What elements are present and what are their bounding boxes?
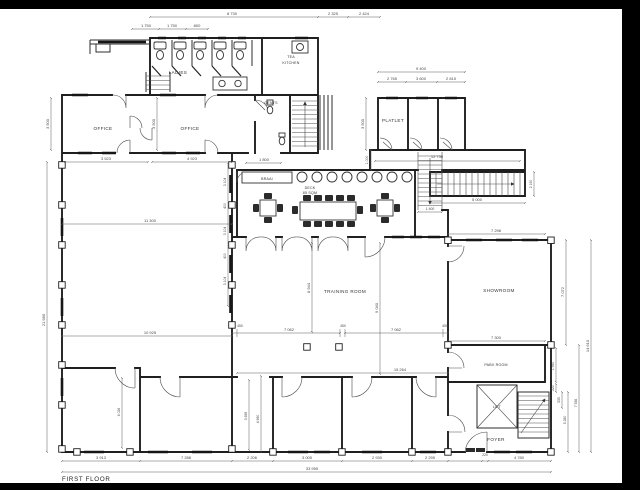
- dim-bottom-7: 220: [482, 453, 488, 457]
- letterbox-bars: [0, 0, 640, 490]
- dim-top-a: 2 325: [328, 11, 339, 16]
- dim-top-b: 2 424: [359, 11, 370, 16]
- dim-left-total: 21 980: [41, 313, 46, 326]
- dim-top-total: 8 730: [227, 11, 238, 16]
- dim-pabx-h: 1 550: [551, 362, 555, 371]
- dim-gents-w: 1 800: [259, 157, 270, 162]
- dim-platlet-h: 3 500: [360, 118, 365, 129]
- dim-col-c: 450: [442, 324, 448, 328]
- dim-stair-e-h: 2 150: [529, 180, 533, 189]
- dim-training-w1: 7 062: [284, 327, 295, 332]
- dim-platlet-1: 2 765: [387, 76, 398, 81]
- dim-showroom-h: 7 072: [560, 286, 565, 297]
- dim-platlet-total: 9 400: [416, 66, 427, 71]
- dim-grid-3: 3 104: [223, 227, 227, 236]
- room-label-deck: DECK: [305, 186, 316, 190]
- dim-grid-4: 400: [223, 253, 227, 259]
- floor-plan-drawing: OFFICE OFFICE LADIES TEA KITCHEN GENTS P…: [0, 0, 640, 490]
- dim-stair-e-w: 5 000: [472, 197, 483, 202]
- room-label-ladies: LADIES: [169, 70, 187, 75]
- room-label-platlet: PLATLET: [382, 118, 404, 123]
- room-label-deck-area: 85 SQM: [303, 191, 317, 195]
- dim-platlet-3: 2 815: [446, 76, 457, 81]
- square-table-right: [370, 193, 400, 223]
- dim-span-lower: 10 925: [144, 330, 157, 335]
- dim-bottom-4: 3 005: [302, 455, 313, 460]
- dim-bottom-6: 2 295: [425, 455, 436, 460]
- room-label-lift: LIFT: [493, 405, 502, 409]
- stair-foyer-treads: [518, 396, 549, 432]
- dim-stall-2: 1 750: [167, 23, 178, 28]
- dim-lift-s: 535: [557, 397, 561, 403]
- dim-bottom-3: 2 206: [247, 455, 258, 460]
- dim-bottom-1: 3 913: [96, 455, 107, 460]
- sanitary-fixtures: [154, 41, 308, 145]
- dim-right-total: 14 610: [585, 339, 590, 352]
- dim-bottom-8: 4 780: [514, 455, 525, 460]
- room-label-tea-kitchen-1: TEA: [287, 55, 295, 59]
- dim-bottom-total: 33 955: [306, 466, 319, 471]
- dim-training-h1: 8 944: [306, 282, 311, 293]
- dim-showroom-w1: 7 298: [491, 228, 502, 233]
- dim-span-upper: 11 300: [144, 218, 157, 223]
- dim-room-left-h: 6 026: [117, 408, 121, 417]
- dim-training-w2: 7 062: [391, 327, 402, 332]
- room-label-office-left: OFFICE: [94, 126, 113, 131]
- stair-foyer-arrow: [521, 399, 545, 433]
- sink-counter: [213, 77, 247, 90]
- dim-col-b: 450: [340, 324, 346, 328]
- dim-stall-1: 1 750: [141, 23, 152, 28]
- dim-grid-1: 3 104: [223, 178, 227, 187]
- dimension-lines: [47, 17, 591, 472]
- dim-office1-h: 3 500: [45, 118, 50, 129]
- square-table-left: [253, 193, 283, 223]
- room-label-gents: GENTS: [264, 101, 278, 105]
- right-bar: [622, 0, 640, 490]
- dim-stair-m-w: 1 400: [426, 207, 435, 211]
- dim-corridor-w: 1 000: [365, 156, 369, 165]
- room-label-office-mid: OFFICE: [181, 126, 200, 131]
- room-label-braai: BRAAI: [261, 177, 273, 181]
- dim-training-h2: 9 040: [374, 302, 379, 313]
- room-label-showroom: SHOWROOM: [483, 288, 514, 293]
- dim-grid-2: 400: [223, 203, 227, 209]
- doors: [113, 66, 487, 452]
- dim-col-a: 450: [237, 324, 243, 328]
- room-label-pabx: PABX ROOM: [484, 363, 507, 367]
- bottom-bar: [0, 483, 640, 490]
- walls: [62, 38, 551, 452]
- dim-gap-h2: 4 690: [256, 415, 260, 424]
- dim-gap-h1: 3 695: [244, 412, 248, 421]
- dim-office2-w: 4 923: [187, 156, 198, 161]
- dim-bottom-5: 2 930: [372, 455, 383, 460]
- dim-office2-h: 3 500: [151, 118, 156, 129]
- dim-pabx-s: 220: [551, 385, 555, 391]
- page-title: FIRST FLOOR: [62, 476, 111, 483]
- long-table: [292, 195, 363, 227]
- dim-right-lower: 7 536: [574, 399, 578, 408]
- dim-stall-3: 800: [194, 23, 201, 28]
- room-label-training: TRAINING ROOM: [324, 289, 366, 294]
- dim-office1-w: 3 523: [101, 156, 112, 161]
- room-label-foyer: FOYER: [487, 437, 505, 442]
- dim-bottom-2: 7 288: [181, 455, 192, 460]
- stairs: [146, 76, 549, 433]
- top-bar: [0, 0, 640, 9]
- dim-corridor-l: 12 730: [431, 154, 444, 159]
- dim-platlet-2: 3 600: [416, 76, 427, 81]
- room-label-tea-kitchen-2: KITCHEN: [282, 61, 299, 65]
- dim-grid-5: 3 104: [223, 277, 227, 286]
- dim-foyer-h: 5 280: [563, 416, 567, 425]
- dim-training-total: 15 264: [394, 367, 407, 372]
- floor-plan-page: OFFICE OFFICE LADIES TEA KITCHEN GENTS P…: [0, 0, 640, 490]
- dim-showroom-w2: 7 300: [491, 335, 502, 340]
